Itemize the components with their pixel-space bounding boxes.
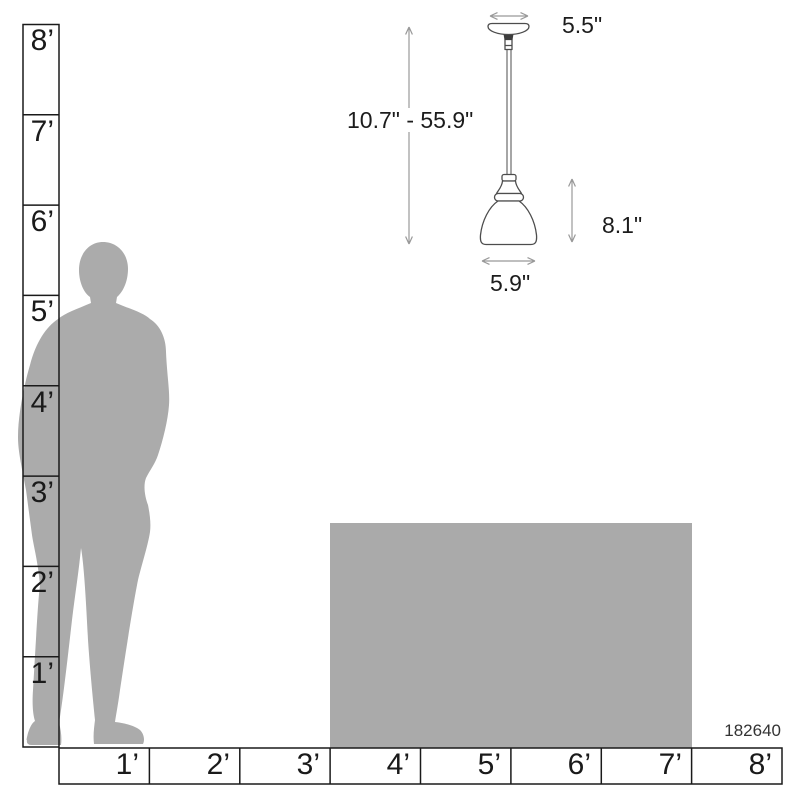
- vertical-ruler-label-7ft: 7’: [23, 117, 54, 147]
- horizontal-ruler-label-1ft: 1’: [59, 750, 139, 780]
- pendant-socket-cap: [502, 175, 516, 182]
- horizontal-ruler-label-7ft: 7’: [602, 750, 682, 780]
- horizontal-ruler-label-3ft: 3’: [240, 750, 320, 780]
- scale-diagram: 8’ 7’ 6’ 5’ 4’ 3’ 2’ 1’ 1’ 2’ 3’ 4’ 5’ 6…: [0, 0, 800, 800]
- canopy-width-dimension: 5.5": [562, 13, 602, 37]
- shade-height-arrow: [569, 179, 576, 242]
- horizontal-ruler-label-8ft: 8’: [692, 750, 772, 780]
- overall-height-arrow: [406, 27, 413, 244]
- furniture-rectangle: [330, 523, 692, 748]
- vertical-ruler-label-5ft: 5’: [23, 297, 54, 327]
- shade-width-arrow: [482, 258, 535, 265]
- horizontal-ruler-label-4ft: 4’: [330, 750, 410, 780]
- vertical-ruler-label-6ft: 6’: [23, 207, 54, 237]
- canopy-width-arrow: [490, 13, 528, 20]
- horizontal-ruler-label-2ft: 2’: [150, 750, 230, 780]
- vertical-ruler-label-1ft: 1’: [23, 659, 54, 689]
- pendant-shade: [480, 201, 536, 245]
- pendant-downrod: [507, 47, 511, 176]
- pendant-canopy: [488, 24, 529, 35]
- horizontal-ruler-label-5ft: 5’: [421, 750, 501, 780]
- product-number: 182640: [724, 722, 781, 740]
- shade-height-dimension: 8.1": [602, 213, 642, 237]
- overall-height-dimension: 10.7" - 55.9": [342, 108, 478, 132]
- pendant-neck-ring: [495, 194, 524, 202]
- pendant-socket: [497, 181, 522, 194]
- vertical-ruler-label-8ft: 8’: [23, 26, 54, 56]
- pendant-light-drawing: [480, 24, 536, 245]
- vertical-ruler-label-4ft: 4’: [23, 388, 54, 418]
- shade-width-dimension: 5.9": [490, 271, 530, 295]
- pendant-stem-fitting: [505, 40, 512, 50]
- horizontal-ruler-label-6ft: 6’: [511, 750, 591, 780]
- vertical-ruler-label-2ft: 2’: [23, 568, 54, 598]
- vertical-ruler-label-3ft: 3’: [23, 478, 54, 508]
